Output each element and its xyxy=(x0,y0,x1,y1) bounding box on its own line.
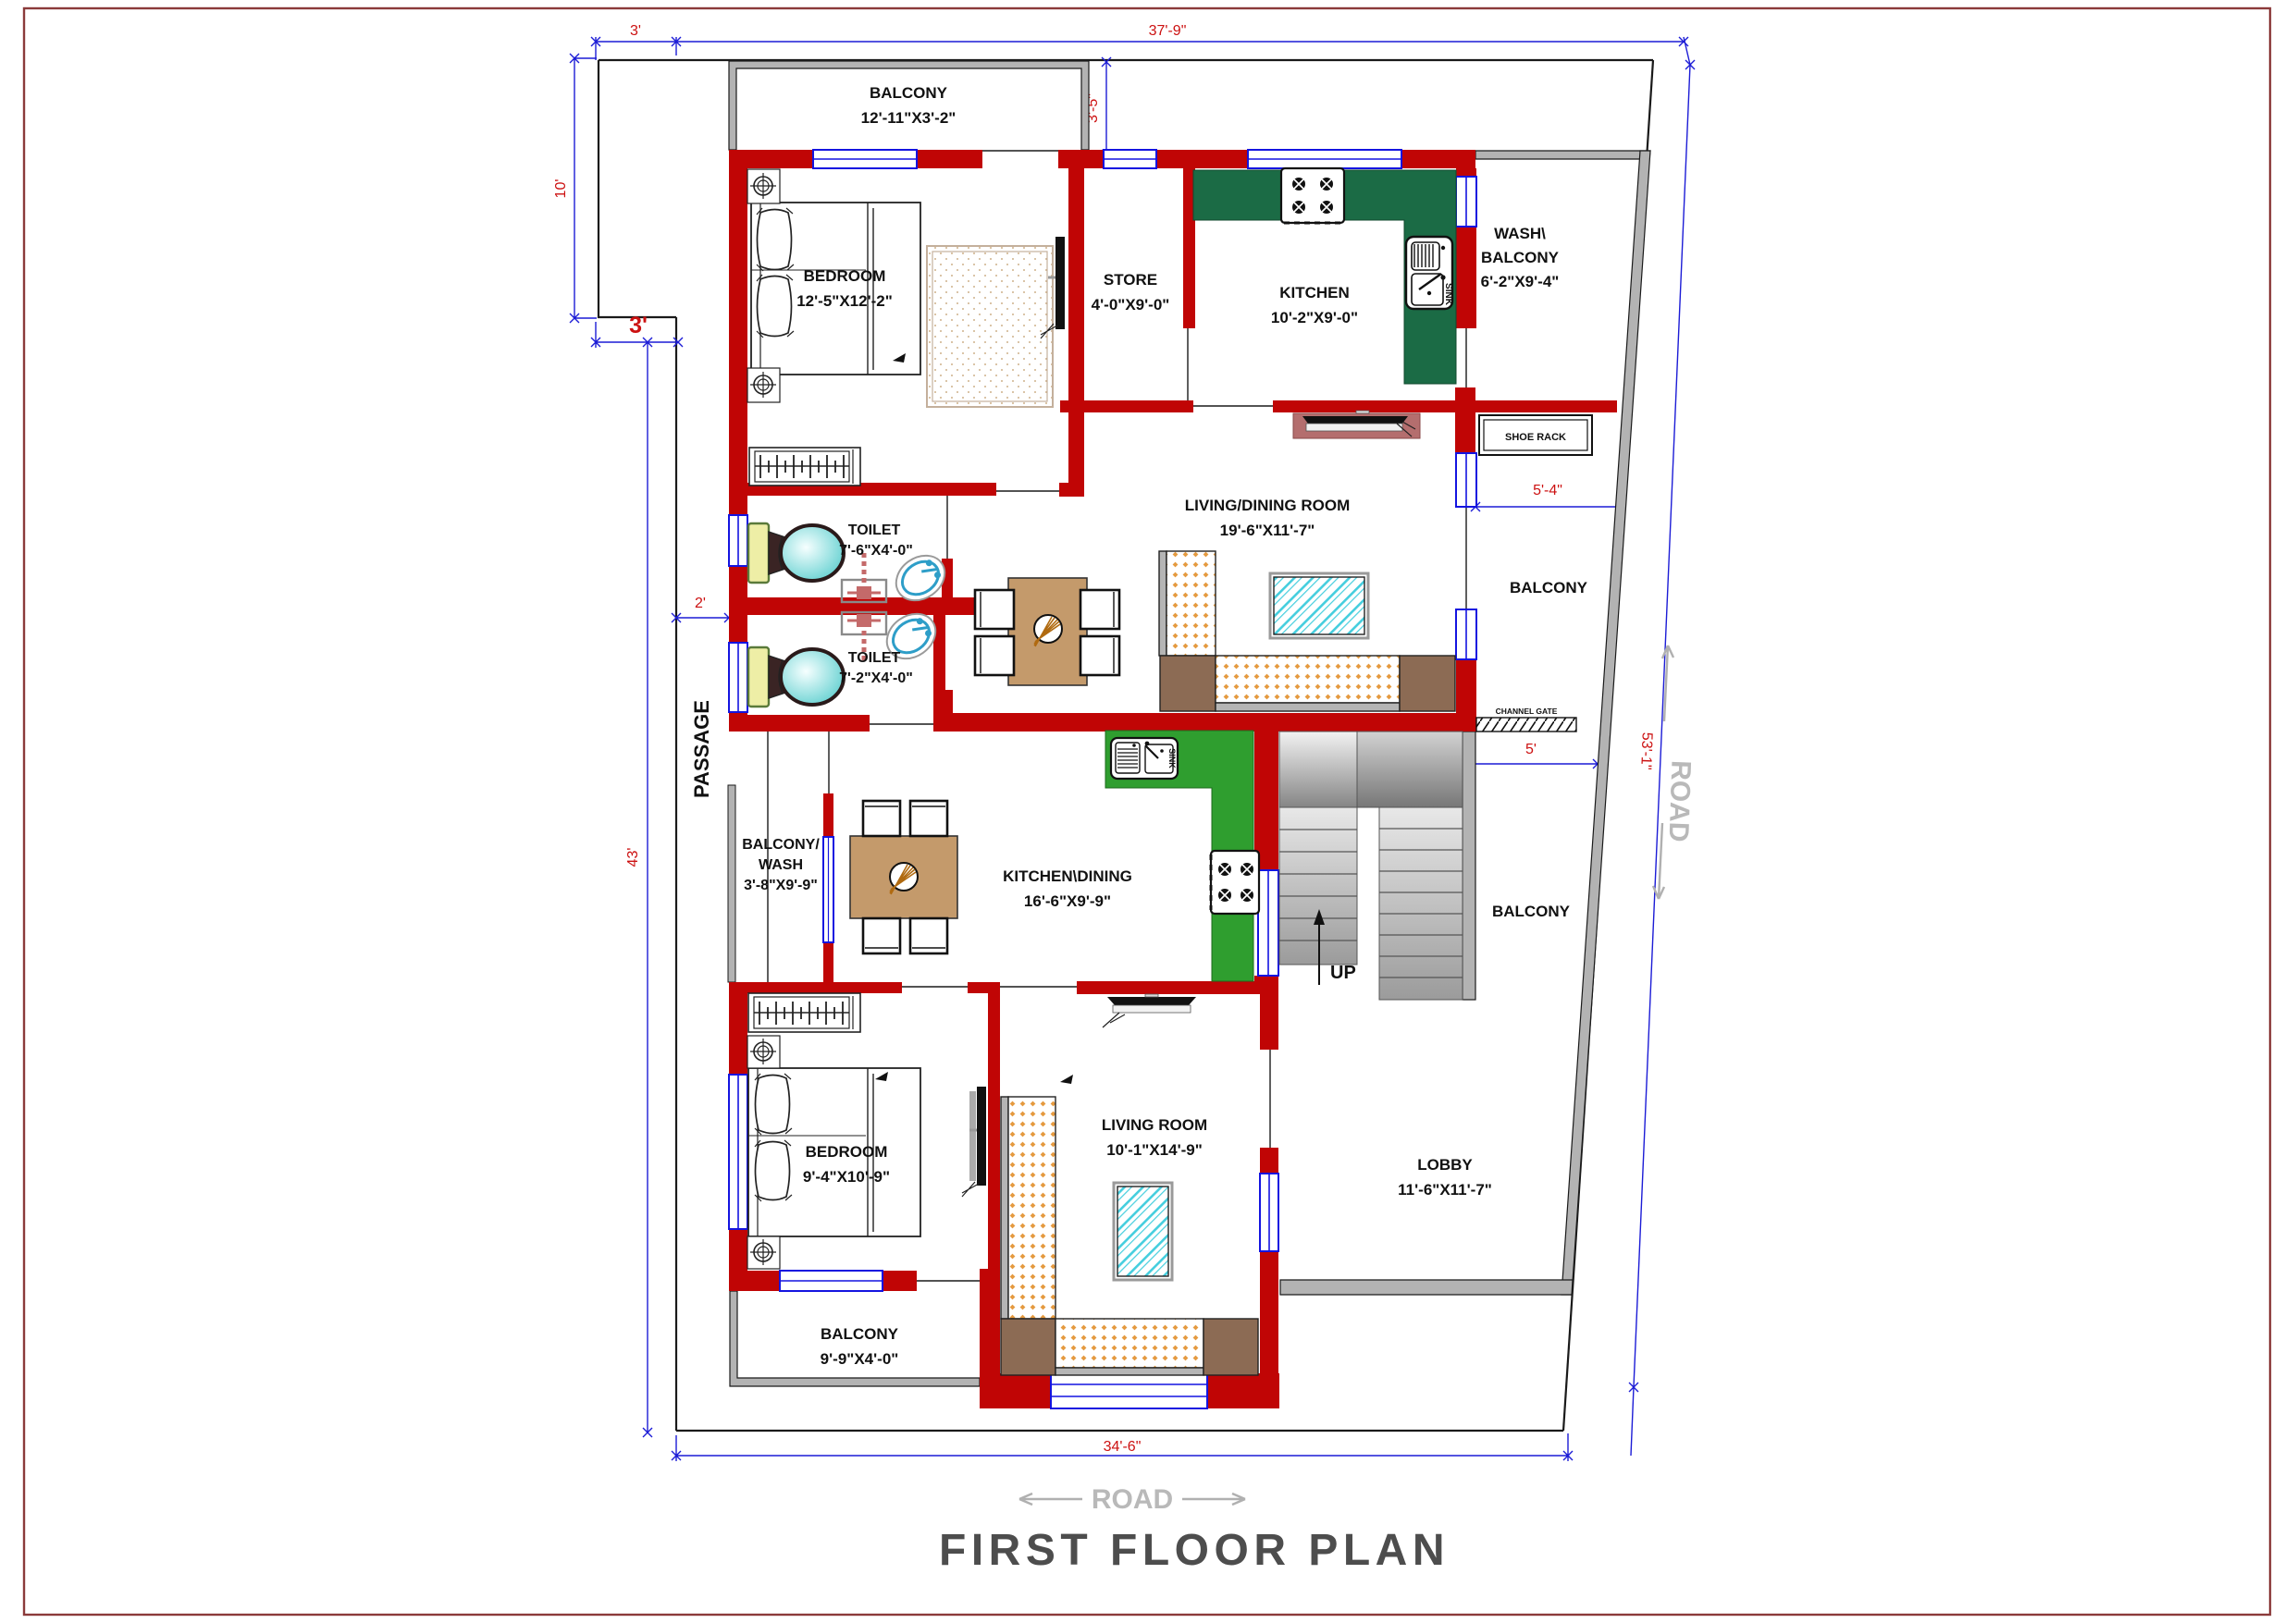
svg-text:UP: UP xyxy=(1330,963,1356,983)
svg-text:BALCONY: BALCONY xyxy=(821,1325,899,1343)
svg-text:5': 5' xyxy=(1525,742,1537,757)
svg-text:11'-6"X11'-7": 11'-6"X11'-7" xyxy=(1398,1181,1492,1199)
svg-text:12'-5"X12'-2": 12'-5"X12'-2" xyxy=(796,292,893,310)
svg-text:6'-2"X9'-4": 6'-2"X9'-4" xyxy=(1481,273,1560,290)
svg-text:STORE: STORE xyxy=(1104,271,1157,289)
svg-text:10'-2"X9'-0": 10'-2"X9'-0" xyxy=(1271,309,1358,326)
svg-text:SHOE RACK: SHOE RACK xyxy=(1505,432,1566,443)
svg-text:TOILET: TOILET xyxy=(848,523,901,538)
svg-text:10'-1"X14'-9": 10'-1"X14'-9" xyxy=(1106,1141,1203,1159)
svg-text:7'-2"X4'-0": 7'-2"X4'-0" xyxy=(839,670,913,686)
svg-text:9'-4"X10'-9": 9'-4"X10'-9" xyxy=(803,1168,890,1186)
svg-text:4'-0"X9'-0": 4'-0"X9'-0" xyxy=(1092,296,1170,314)
svg-text:CHANNEL GATE: CHANNEL GATE xyxy=(1496,707,1558,716)
svg-text:WASH\: WASH\ xyxy=(1494,225,1546,242)
svg-text:BALCONY/: BALCONY/ xyxy=(742,837,820,853)
svg-text:TOILET: TOILET xyxy=(848,650,901,666)
svg-text:BEDROOM: BEDROOM xyxy=(806,1143,888,1161)
svg-text:KITCHEN\DINING: KITCHEN\DINING xyxy=(1003,867,1132,885)
svg-text:34'-6": 34'-6" xyxy=(1104,1439,1142,1455)
svg-text:43': 43' xyxy=(625,848,641,867)
svg-text:BALCONY: BALCONY xyxy=(870,84,948,102)
svg-text:53'-1": 53'-1" xyxy=(1637,732,1654,769)
svg-text:BALCONY: BALCONY xyxy=(1510,579,1588,596)
svg-text:3': 3' xyxy=(629,313,648,338)
svg-text:ROAD: ROAD xyxy=(1662,760,1696,842)
svg-text:12'-11"X3'-2": 12'-11"X3'-2" xyxy=(861,109,957,127)
svg-text:10': 10' xyxy=(553,179,569,199)
svg-text:9'-9"X4'-0": 9'-9"X4'-0" xyxy=(821,1350,899,1368)
svg-text:LOBBY: LOBBY xyxy=(1417,1156,1473,1174)
svg-text:PASSAGE: PASSAGE xyxy=(690,700,713,798)
svg-text:SINK: SINK xyxy=(1167,748,1177,768)
svg-text:7'-6"X4'-0": 7'-6"X4'-0" xyxy=(839,543,913,559)
svg-text:BALCONY: BALCONY xyxy=(1492,903,1571,920)
svg-text:FIRST FLOOR PLAN: FIRST FLOOR PLAN xyxy=(939,1526,1450,1575)
svg-text:BEDROOM: BEDROOM xyxy=(804,267,886,285)
svg-text:2': 2' xyxy=(695,596,706,611)
svg-text:LIVING/DINING ROOM: LIVING/DINING ROOM xyxy=(1185,497,1351,514)
svg-text:LIVING ROOM: LIVING ROOM xyxy=(1102,1116,1207,1134)
svg-text:16'-6"X9'-9": 16'-6"X9'-9" xyxy=(1024,892,1111,910)
svg-text:3'-8"X9'-9": 3'-8"X9'-9" xyxy=(744,878,818,893)
svg-text:5'-4": 5'-4" xyxy=(1533,483,1562,498)
svg-text:3': 3' xyxy=(630,23,641,39)
svg-text:WASH: WASH xyxy=(759,857,803,873)
svg-text:KITCHEN: KITCHEN xyxy=(1279,284,1350,301)
svg-text:37'-9": 37'-9" xyxy=(1149,23,1187,39)
svg-text:ROAD: ROAD xyxy=(1092,1484,1173,1515)
svg-text:BALCONY: BALCONY xyxy=(1481,249,1560,266)
svg-text:19'-6"X11'-7": 19'-6"X11'-7" xyxy=(1220,522,1315,539)
svg-text:SINK: SINK xyxy=(1443,283,1453,306)
